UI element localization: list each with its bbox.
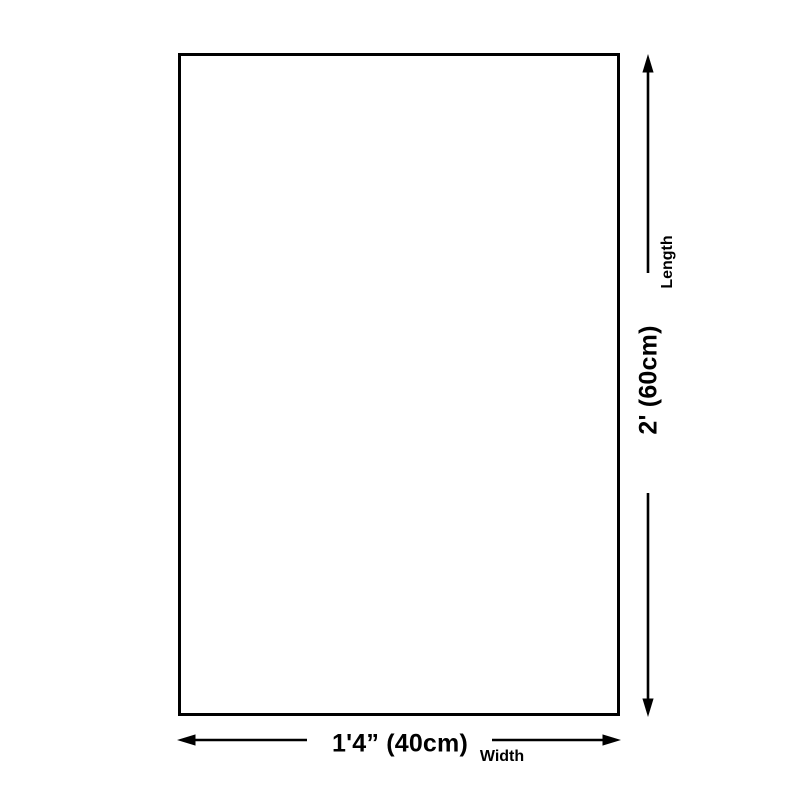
length-axis-label: Length (659, 235, 677, 288)
dimension-diagram: 1'4” (40cm) Width 2' (60cm) Length (0, 0, 800, 800)
length-measurement-label: 2' (60cm) (635, 325, 664, 434)
product-outline-rectangle (178, 53, 620, 716)
width-axis-label: Width (480, 748, 524, 766)
width-measurement-label: 1'4” (40cm) (332, 730, 468, 759)
